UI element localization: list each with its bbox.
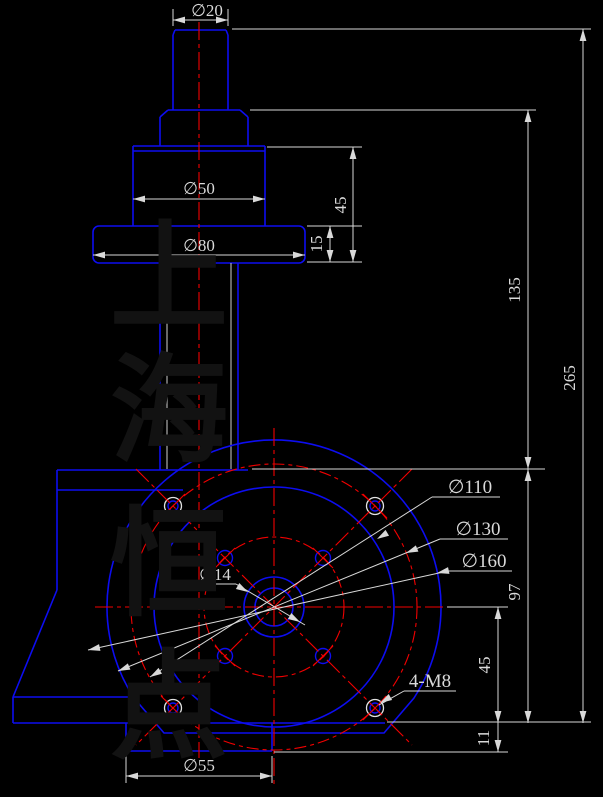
dim-45-lower-label: 45 (475, 657, 494, 674)
dimension-arrows-segment (580, 29, 587, 41)
dim-dia130-label: ∅130 (455, 519, 500, 540)
dim-dia160-label: ∅160 (461, 551, 506, 572)
dimension-arrows-segment (173, 17, 185, 24)
dimension-arrows-segment (350, 250, 357, 262)
watermark-char-2: 海 (104, 352, 234, 470)
watermark-char-3: 恒 (104, 505, 234, 623)
dimension-text: ∅20 ∅50 ∅80 45 15 135 265 97 45 11 ∅55 ∅… (183, 1, 579, 775)
watermark-char-4: 点 (104, 648, 234, 766)
dimension-arrows-segment (350, 147, 357, 159)
front-view-outline-segment (226, 30, 228, 35)
dimension-arrows-segment (525, 457, 532, 469)
dim-135-label: 135 (505, 277, 524, 303)
dim-265-label: 265 (560, 365, 579, 391)
dim-15-label: 15 (307, 236, 326, 253)
dim-45-upper-label: 45 (331, 197, 350, 214)
dimension-arrows-segment (327, 250, 334, 262)
dimension-arrows-segment (525, 469, 532, 481)
dimension-arrows-segment (525, 110, 532, 122)
dimension-arrows-segment (133, 196, 145, 203)
dimension-arrows-segment (495, 607, 502, 619)
dimension-lines-segment (379, 691, 404, 705)
front-view-outline-segment (240, 110, 248, 117)
drawing-svg: ∅20 ∅50 ∅80 45 15 135 265 97 45 11 ∅55 ∅… (0, 0, 603, 797)
watermark-char-1: 上 (104, 218, 234, 336)
dimension-arrows-segment (495, 711, 502, 723)
dimension-arrows-segment (580, 711, 587, 723)
dimension-arrows-segment (293, 252, 305, 259)
dimension-arrows-segment (253, 196, 265, 203)
dimension-arrows-segment (495, 740, 502, 752)
front-view-outline-segment (13, 590, 57, 697)
dimension-arrows-segment (525, 711, 532, 723)
dimension-arrows-segment (87, 644, 100, 653)
cad-canvas: 上 海 恒 点 (0, 0, 603, 797)
dim-dia20-label: ∅20 (191, 1, 223, 20)
dimension-arrows-segment (327, 226, 334, 238)
thread-callout-label: 4-M8 (409, 671, 451, 692)
front-view-outline-segment (160, 110, 168, 117)
front-view-outline-segment (173, 30, 175, 35)
dim-dia110-label: ∅110 (448, 477, 492, 498)
dimension-arrows-segment (260, 773, 272, 780)
dim-11-label: 11 (474, 730, 493, 746)
dim-dia50-label: ∅50 (183, 179, 215, 198)
dim-97-label: 97 (505, 583, 524, 601)
